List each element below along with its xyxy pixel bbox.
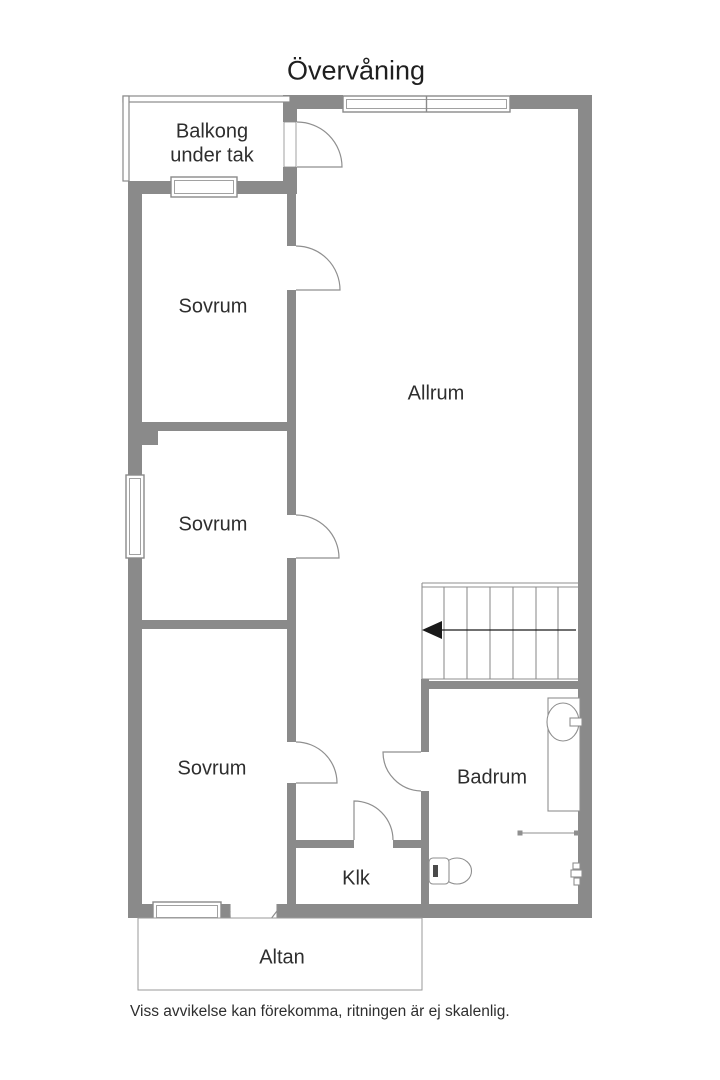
altan-door-jambs (230, 904, 277, 918)
sink-icon (547, 698, 582, 811)
room-label-badrum: Badrum (457, 767, 527, 790)
room-label-sovrum3: Sovrum (178, 758, 247, 781)
mixer-tap-icon (571, 863, 582, 885)
floorplan-canvas: Övervåning Balkong under tak Sovrum Sovr… (0, 0, 720, 1080)
room-label-altan: Altan (259, 947, 305, 970)
door-sovrum3 (296, 742, 337, 783)
door-sovrum1 (296, 246, 340, 290)
stair-treads (444, 587, 558, 679)
door-badrum (383, 752, 421, 791)
door-sovrum2 (296, 515, 339, 558)
door-leaf-balkong (284, 122, 296, 167)
floorplan-drawing (0, 0, 720, 1080)
door-balkong (297, 122, 342, 167)
staircase (422, 583, 578, 679)
room-label-sovrum1: Sovrum (179, 296, 248, 319)
room-label-allrum: Allrum (408, 383, 465, 406)
page-title: Övervåning (287, 56, 425, 87)
windows (126, 96, 510, 921)
room-label-balkong-line1: Balkong (176, 121, 248, 144)
shower-rail-icon (518, 831, 580, 836)
walls (128, 95, 592, 918)
doors (230, 122, 421, 950)
window-icon-sovrum1 (171, 177, 237, 197)
window-icon-allrum (343, 96, 510, 112)
door-klk (354, 801, 393, 840)
toilet-icon (429, 858, 472, 884)
stairs-arrow-icon (422, 621, 576, 639)
room-label-balkong-line2: under tak (170, 145, 253, 168)
disclaimer-text: Viss avvikelse kan förekomma, ritningen … (130, 1003, 510, 1021)
room-label-sovrum2: Sovrum (179, 514, 248, 537)
window-icon-sovrum2 (126, 475, 144, 558)
room-label-klk: Klk (342, 868, 370, 891)
bathroom-fixtures (429, 698, 582, 885)
